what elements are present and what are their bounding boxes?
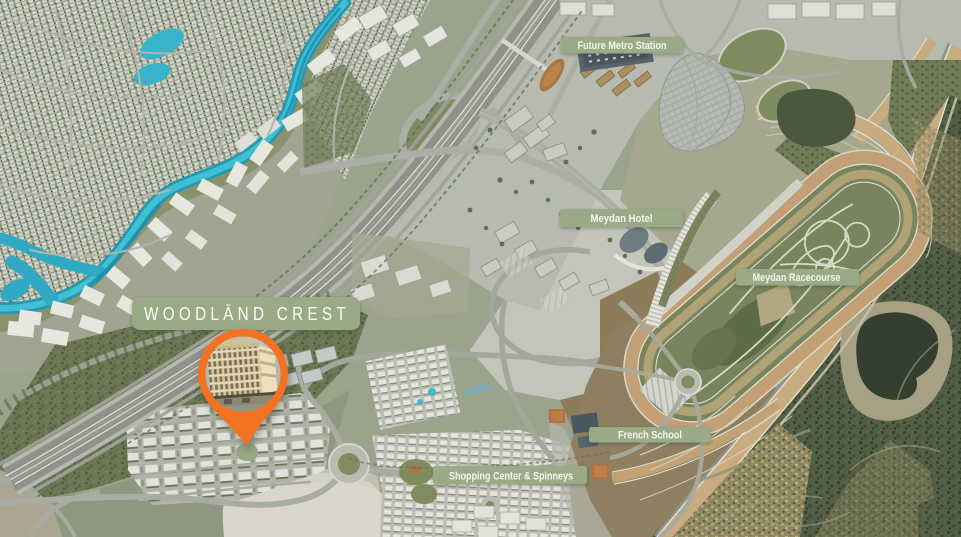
svg-text:Future Metro Station: Future Metro Station bbox=[578, 40, 667, 52]
svg-text:Meydan Hotel: Meydan Hotel bbox=[591, 213, 653, 225]
svg-text:French School: French School bbox=[618, 430, 682, 442]
svg-text:Meydan Racecourse: Meydan Racecourse bbox=[753, 272, 841, 284]
svg-text:WOODLĀND CREST: WOODLĀND CREST bbox=[144, 304, 350, 324]
svg-text:Shopping Center & Spinneys: Shopping Center & Spinneys bbox=[449, 471, 573, 483]
